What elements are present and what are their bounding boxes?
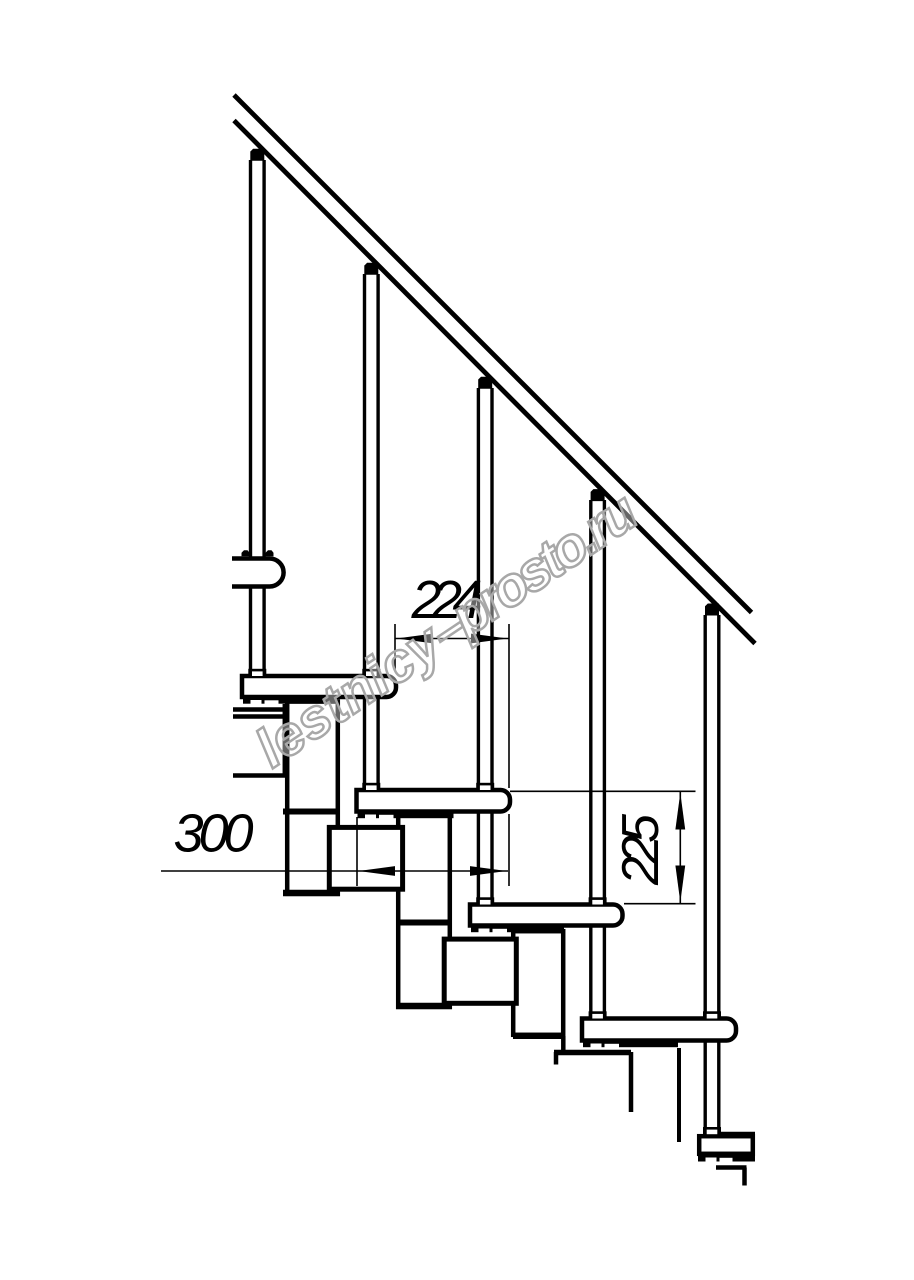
svg-text:225: 225 (612, 813, 670, 886)
svg-text:300: 300 (174, 804, 254, 864)
